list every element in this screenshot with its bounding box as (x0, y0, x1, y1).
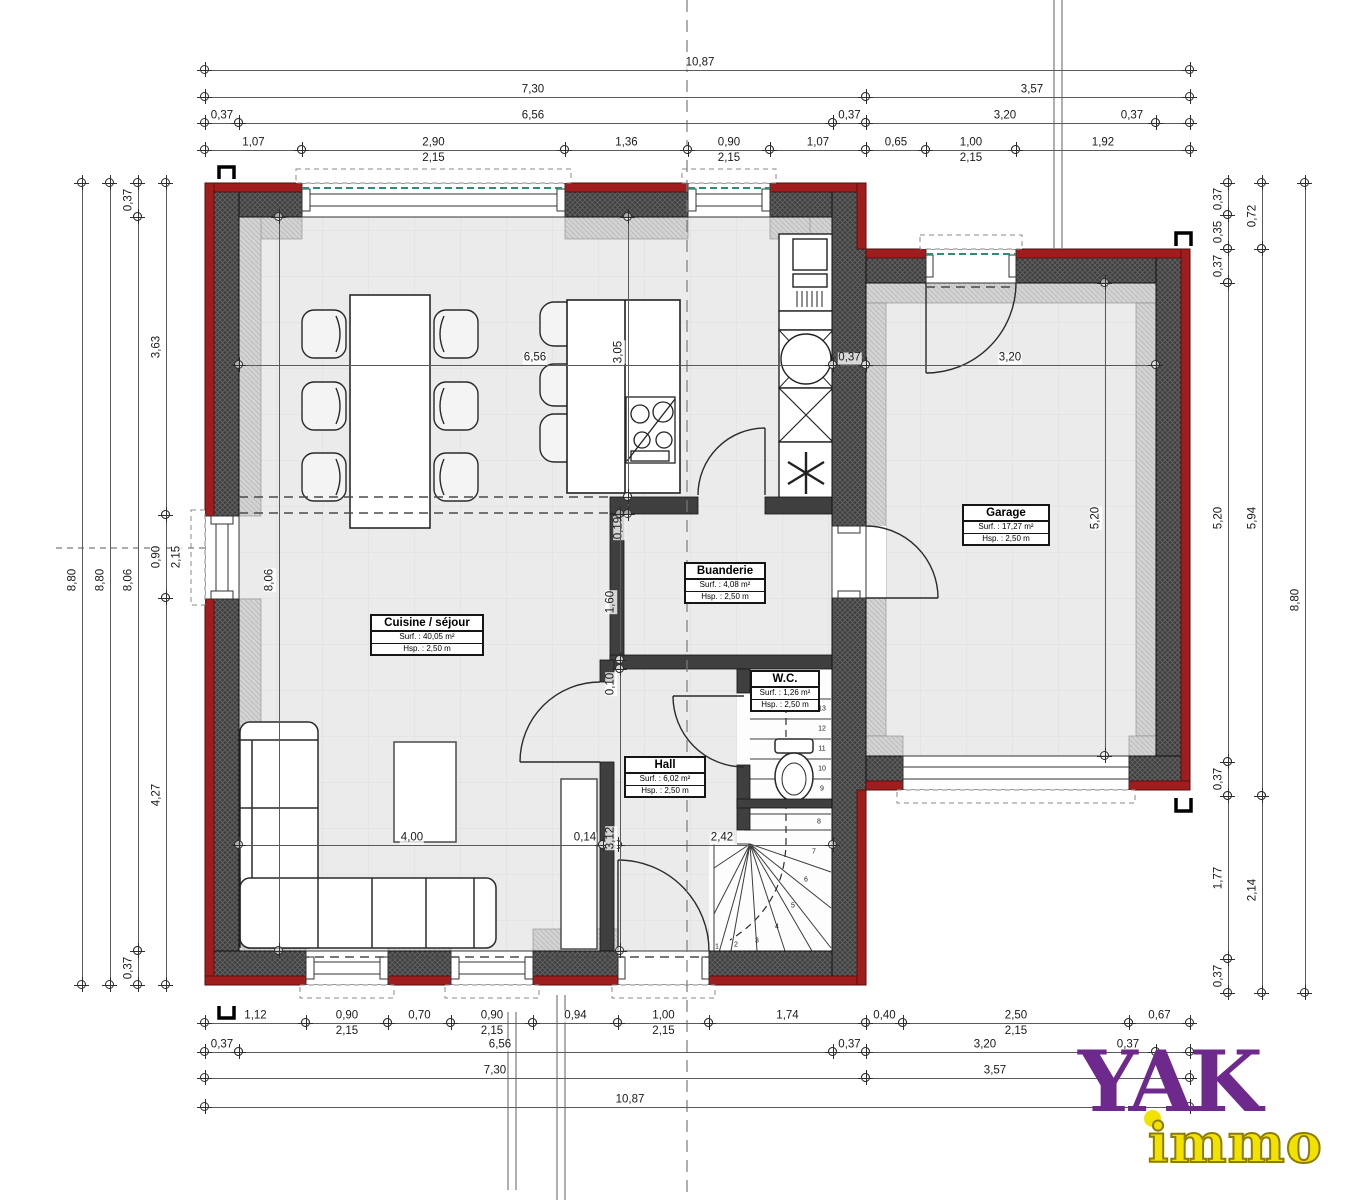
coffee-table (394, 742, 456, 842)
garage-door-recess (866, 526, 886, 598)
cooktop (626, 397, 675, 463)
logo-sub-text: immo (1148, 1116, 1323, 1170)
kitchen-tall-units (779, 234, 833, 499)
floor-plan-canvas: 10,877,303,570,376,560,373,200,371,072,9… (0, 0, 1371, 1200)
agency-logo: YAK immo (1070, 1040, 1370, 1200)
floor-plan-drawing (0, 0, 1371, 1200)
dining-table (350, 295, 430, 528)
tv-unit (561, 779, 597, 949)
toilet (775, 739, 813, 801)
